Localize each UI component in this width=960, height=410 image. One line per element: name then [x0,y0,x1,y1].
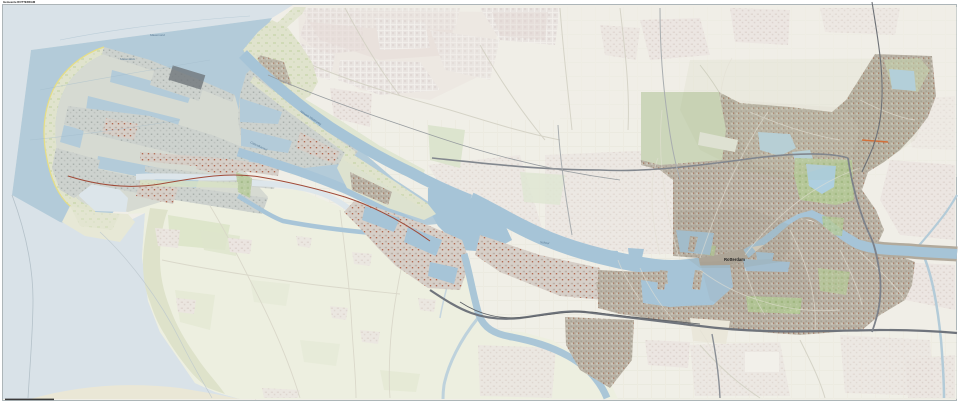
svg-text:Rotterdam: Rotterdam [724,257,745,262]
svg-text:Maasmond: Maasmond [150,33,165,37]
svg-text:Gemeente ROTTERDAM: Gemeente ROTTERDAM [3,0,36,4]
svg-text:Maasvlakte: Maasvlakte [120,57,136,61]
